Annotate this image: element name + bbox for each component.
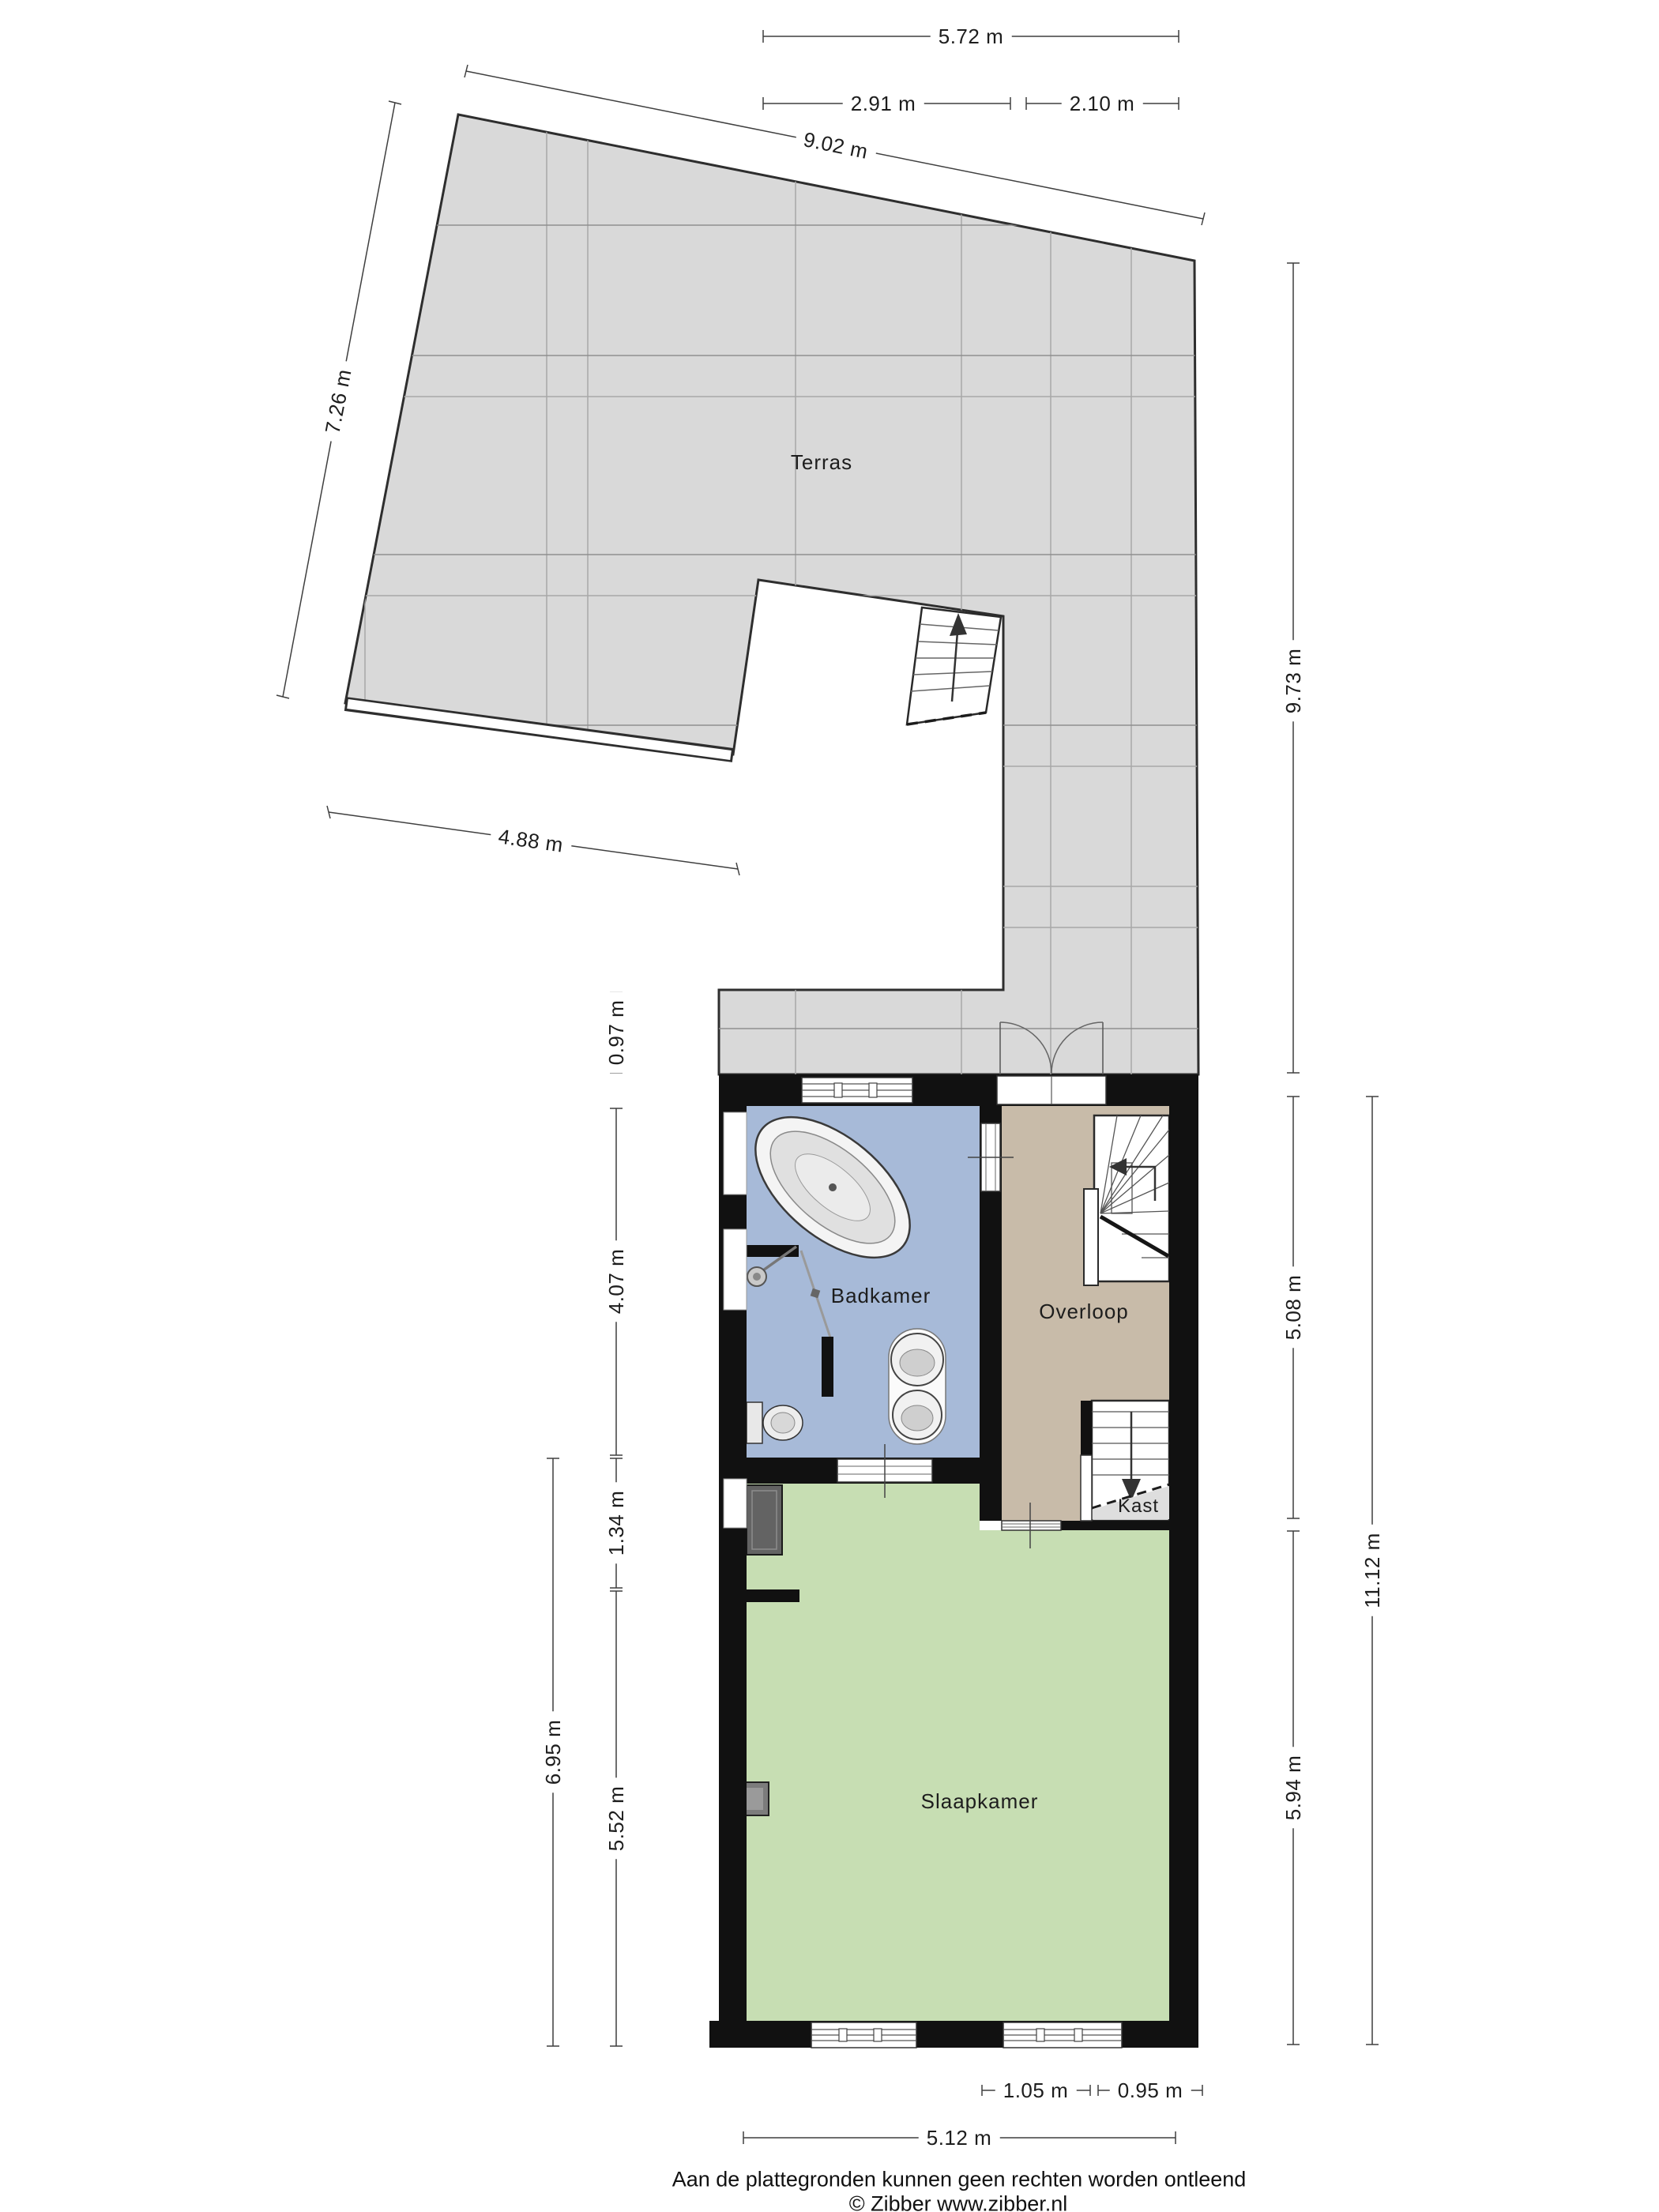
- wardrobe-icon: [747, 1485, 782, 1555]
- dim-badkamer-height: 4.07 m: [604, 1241, 628, 1322]
- dim-top-left: 2.91 m: [843, 92, 924, 115]
- slaapkamer-floor: [747, 1484, 980, 2021]
- footer-disclaimer: Aan de plattegronden kunnen geen rechten…: [672, 2169, 1247, 2191]
- dim-slaapkamer-right: 5.94 m: [1281, 1747, 1305, 1829]
- wall-left: [719, 1074, 747, 2048]
- room-label-terras: Terras: [791, 452, 852, 472]
- dim-building-total: 11.12 m: [1360, 1525, 1384, 1616]
- dim-building-width: 5.12 m: [919, 2126, 1000, 2150]
- footer-credit: © Zibber www.zibber.nl: [849, 2194, 1068, 2212]
- dim-nook-height: 1.34 m: [604, 1483, 628, 1564]
- room-label-kast: Kast: [1118, 1497, 1159, 1516]
- floorplan-canvas: Terras Badkamer Overloop Kast Slaapkamer…: [0, 0, 1659, 2212]
- room-label-overloop: Overloop: [1039, 1301, 1129, 1322]
- winder-stairs-icon: [1084, 1115, 1169, 1285]
- terrace-floor: [340, 111, 1201, 1078]
- dim-window-right: 0.95 m: [1110, 2078, 1191, 2102]
- dim-window-left: 1.05 m: [995, 2078, 1077, 2102]
- dim-left-total: 6.95 m: [541, 1712, 565, 1793]
- window-bottom-right: [1003, 2022, 1122, 2048]
- washbasin-icon: [889, 1329, 946, 1444]
- dim-slaapkamer-left: 5.52 m: [604, 1778, 628, 1860]
- room-label-slaapkamer: Slaapkamer: [921, 1791, 1039, 1811]
- dim-front-strip: 0.97 m: [604, 992, 628, 1074]
- dim-terrace-right: 9.73 m: [1281, 641, 1305, 722]
- wall-top: [719, 1074, 1198, 1106]
- floorplan-drawing: [0, 0, 1659, 2212]
- outdoor-stairs-icon: [907, 608, 1001, 724]
- room-label-badkamer: Badkamer: [831, 1285, 931, 1306]
- window-bottom-left: [811, 2022, 916, 2048]
- wall-nook-stub: [747, 1589, 799, 1602]
- dim-overloop-height: 5.08 m: [1281, 1267, 1305, 1349]
- wall-kast-thin: [1081, 1455, 1092, 1521]
- wall-right: [1169, 1074, 1198, 2048]
- toilet-icon: [747, 1402, 803, 1443]
- dim-top-right: 2.10 m: [1062, 92, 1143, 115]
- wall-overloop-pier: [1061, 1521, 1092, 1530]
- dim-top-total: 5.72 m: [931, 24, 1012, 48]
- wall-kast-bottom: [1092, 1521, 1198, 1530]
- window-top-badkamer: [802, 1078, 912, 1103]
- wall-kast-stub: [1081, 1401, 1092, 1455]
- wall-bottom: [709, 2021, 1198, 2048]
